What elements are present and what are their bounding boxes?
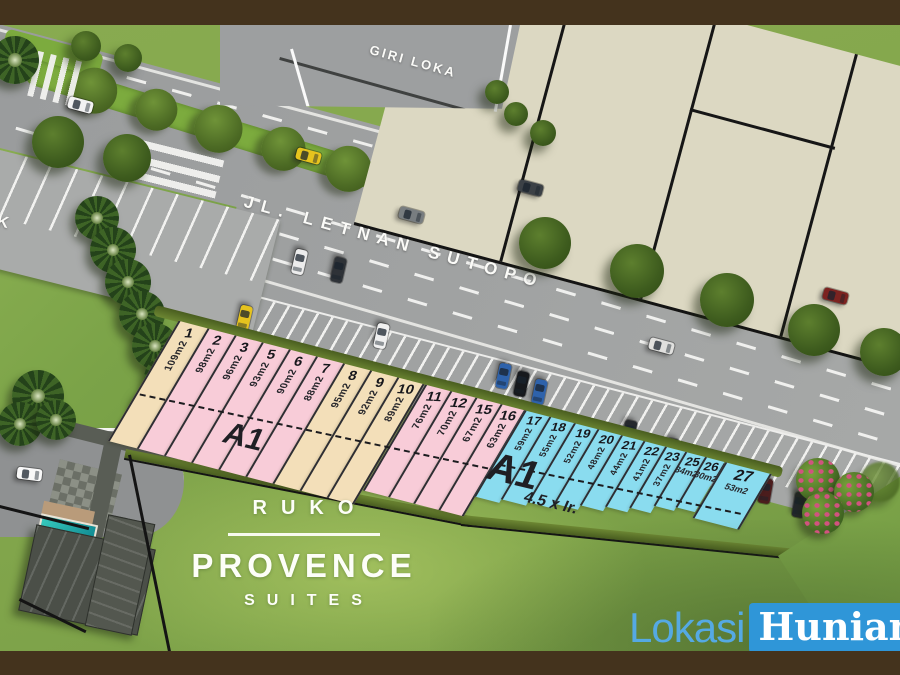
lot-number: 10 (395, 382, 416, 397)
branding-suites: SUITES (178, 592, 440, 610)
project-branding: RUKO PROVENCE SUITES (168, 497, 440, 610)
tree (504, 102, 528, 126)
block-divider (690, 108, 836, 149)
tree (519, 217, 571, 269)
lot-number: 18 (549, 421, 568, 434)
tree (530, 120, 556, 146)
lot-number: 16 (498, 408, 519, 423)
lot-size: 89m2 (382, 395, 407, 422)
tree (700, 273, 754, 327)
lot-number: 3 (238, 340, 251, 354)
tree (610, 244, 664, 298)
lot-number: 20 (597, 434, 616, 447)
branding-divider (228, 533, 380, 536)
lot-number: 9 (373, 375, 386, 389)
lot-number: 27 (730, 468, 755, 486)
watermark: Lokasi Hunian (629, 603, 900, 653)
palm-tree (36, 400, 76, 440)
lot-number: 15 (474, 402, 495, 417)
tree (71, 31, 101, 61)
cross-road-label: GIRI LOKA (368, 42, 458, 80)
lot-number: 8 (346, 368, 359, 382)
tree (788, 304, 840, 356)
frame-bottom (0, 651, 900, 675)
watermark-lokasi: Lokasi (629, 604, 744, 652)
lot-number: 21 (620, 440, 639, 453)
lot-number: 12 (448, 396, 469, 411)
lot-number: 26 (702, 461, 721, 474)
curb-line (290, 49, 311, 113)
lot-number: 17 (524, 415, 543, 428)
lot-number: 19 (573, 428, 592, 441)
branding-provence: PROVENCE (168, 547, 440, 585)
tree (485, 80, 509, 104)
lot-number: 22 (642, 445, 661, 458)
tree (860, 328, 900, 376)
branding-ruko: RUKO (180, 497, 440, 520)
site-plan-image: GIRI LOKA JL. LETNAN SUTOPO SIK 1109m229… (0, 0, 900, 675)
tree (103, 134, 151, 182)
watermark-hunian: Hunian (749, 603, 900, 653)
flower-bush (802, 492, 844, 534)
lot-number: 5 (265, 347, 278, 361)
lot-number: 11 (424, 389, 444, 404)
lot-number: 2 (211, 333, 224, 347)
frame-top (0, 0, 900, 25)
lot-number: 6 (292, 354, 305, 368)
tree (114, 44, 142, 72)
lot-number: 1 (183, 326, 196, 340)
tree (32, 116, 84, 168)
lot-number: 7 (319, 361, 332, 375)
